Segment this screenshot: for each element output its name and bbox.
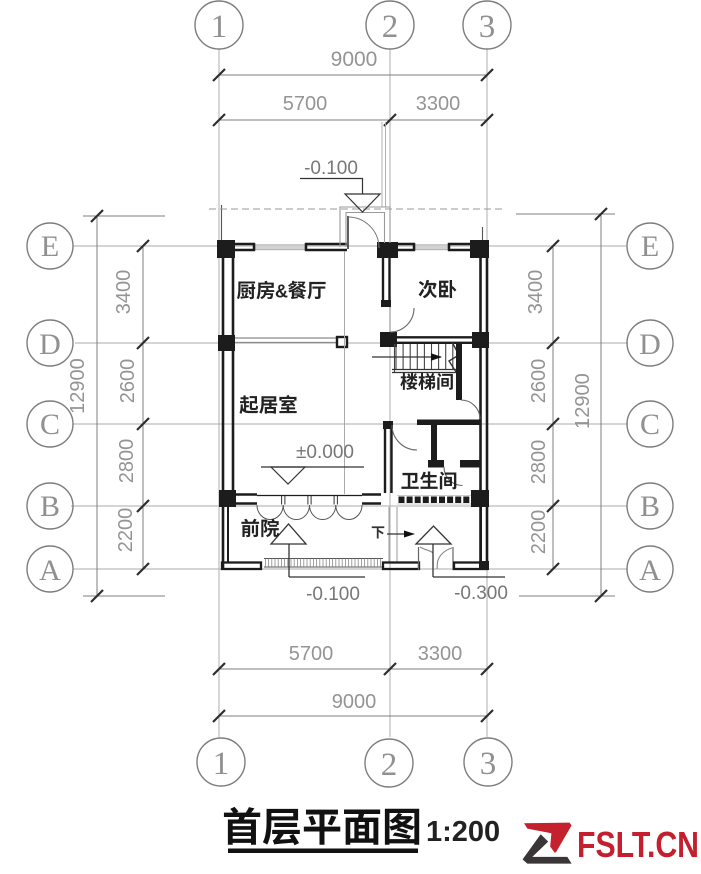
svg-text:B: B [640, 490, 660, 523]
svg-text:2: 2 [382, 9, 399, 45]
svg-text:3300: 3300 [416, 93, 461, 115]
svg-text:-0.100: -0.100 [306, 584, 360, 605]
svg-text:A: A [639, 554, 661, 587]
svg-text:D: D [639, 328, 661, 361]
svg-text:5700: 5700 [289, 643, 334, 665]
svg-text:C: C [40, 408, 60, 441]
svg-text:12900: 12900 [572, 373, 594, 429]
svg-text:D: D [39, 328, 61, 361]
svg-text:FSLT.CN: FSLT.CN [577, 824, 699, 865]
svg-text:2600: 2600 [117, 359, 139, 404]
svg-text:1:200: 1:200 [426, 816, 500, 848]
svg-text:3: 3 [480, 746, 497, 782]
svg-text:E: E [41, 230, 59, 263]
svg-text:A: A [39, 554, 61, 587]
svg-text:12900: 12900 [67, 358, 89, 414]
svg-text:2: 2 [381, 747, 398, 783]
svg-text:1: 1 [213, 746, 230, 782]
svg-text:&: & [275, 281, 288, 301]
svg-text:9000: 9000 [331, 48, 378, 71]
svg-text:9000: 9000 [332, 691, 377, 713]
svg-text:E: E [641, 230, 659, 263]
svg-text:2800: 2800 [116, 439, 138, 484]
svg-text:3: 3 [479, 9, 496, 45]
svg-text:2200: 2200 [115, 508, 137, 553]
svg-text:2800: 2800 [528, 440, 550, 485]
svg-text:-0.100: -0.100 [304, 158, 358, 179]
svg-text:B: B [40, 490, 60, 523]
svg-text:2600: 2600 [528, 359, 550, 404]
svg-text:C: C [640, 408, 660, 441]
svg-text:5700: 5700 [283, 93, 328, 115]
svg-text:3300: 3300 [418, 643, 463, 665]
svg-text:3400: 3400 [525, 270, 547, 315]
svg-text:2200: 2200 [528, 510, 550, 555]
svg-text:3400: 3400 [113, 270, 135, 315]
svg-text:±0.000: ±0.000 [296, 442, 354, 463]
svg-text:-0.300: -0.300 [454, 583, 508, 604]
svg-text:1: 1 [211, 9, 228, 45]
